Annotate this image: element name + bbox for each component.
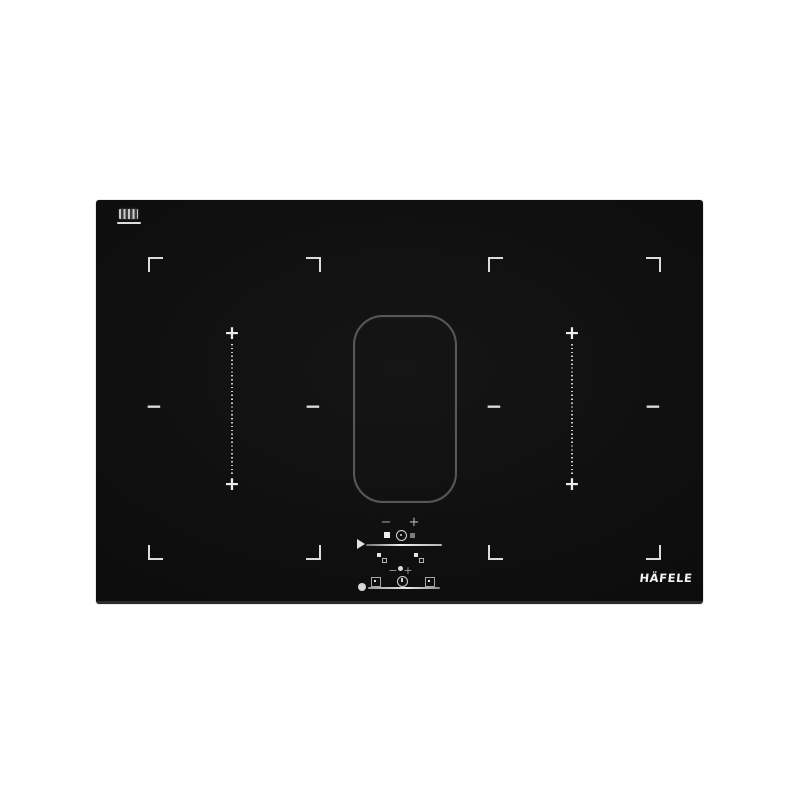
zone-minus-mark-icon: − — [304, 396, 322, 416]
zone-bracket-left-tl-icon — [148, 257, 163, 272]
zone-bracket-right-bl-icon — [488, 545, 503, 560]
bridge-plus-mark-icon: + — [564, 474, 580, 494]
brand-logo: HÄFELE — [629, 570, 703, 586]
bridge-plus-mark-icon: + — [224, 323, 240, 343]
bridge-dotted-line — [231, 344, 233, 476]
power-slider-track[interactable] — [366, 544, 442, 546]
timer-key-icon[interactable] — [396, 530, 407, 541]
zone-bracket-left-br-icon — [306, 545, 321, 560]
bridge-plus-mark-icon: + — [224, 474, 240, 494]
hob-plus-key[interactable]: + — [407, 514, 421, 530]
zone-bracket-right-br-icon — [646, 545, 661, 560]
slider-pointer-icon — [357, 539, 365, 549]
vent-plus-key[interactable]: + — [402, 563, 414, 577]
flex-bridge-left-key-icon[interactable] — [377, 553, 387, 563]
hob-minus-key[interactable]: − — [379, 514, 393, 530]
bridge-plus-mark-icon: + — [564, 323, 580, 343]
coil-underline — [117, 222, 141, 224]
pause-key-icon[interactable] — [410, 533, 415, 538]
vent-slider-track[interactable] — [368, 587, 440, 589]
zone-minus-mark-icon: − — [145, 396, 163, 416]
vent-mode-right-key-icon[interactable] — [425, 577, 435, 587]
bridge-dotted-line — [571, 344, 573, 476]
zone-minus-mark-icon: − — [644, 396, 662, 416]
flex-bridge-right-key-icon[interactable] — [414, 553, 424, 563]
central-flex-zone-outline — [353, 315, 457, 503]
stop-key-icon[interactable] — [384, 532, 390, 538]
induction-cooktop-glass: − − − − + + + + − + − + HÄFELE — [96, 200, 703, 604]
zone-bracket-left-bl-icon — [148, 545, 163, 560]
zone-bracket-right-tl-icon — [488, 257, 503, 272]
product-image: − − − − + + + + − + − + HÄFELE — [0, 0, 800, 800]
vent-mode-left-key-icon[interactable] — [371, 577, 381, 587]
zone-bracket-left-tr-icon — [306, 257, 321, 272]
coil-bars-icon — [119, 209, 138, 219]
vent-minus-key[interactable]: − — [387, 563, 399, 577]
clock-key-icon[interactable] — [397, 576, 408, 587]
induction-coil-badge-icon — [116, 208, 142, 230]
zone-bracket-right-tr-icon — [646, 257, 661, 272]
vent-power-knob-icon[interactable] — [358, 583, 366, 591]
zone-minus-mark-icon: − — [485, 396, 503, 416]
